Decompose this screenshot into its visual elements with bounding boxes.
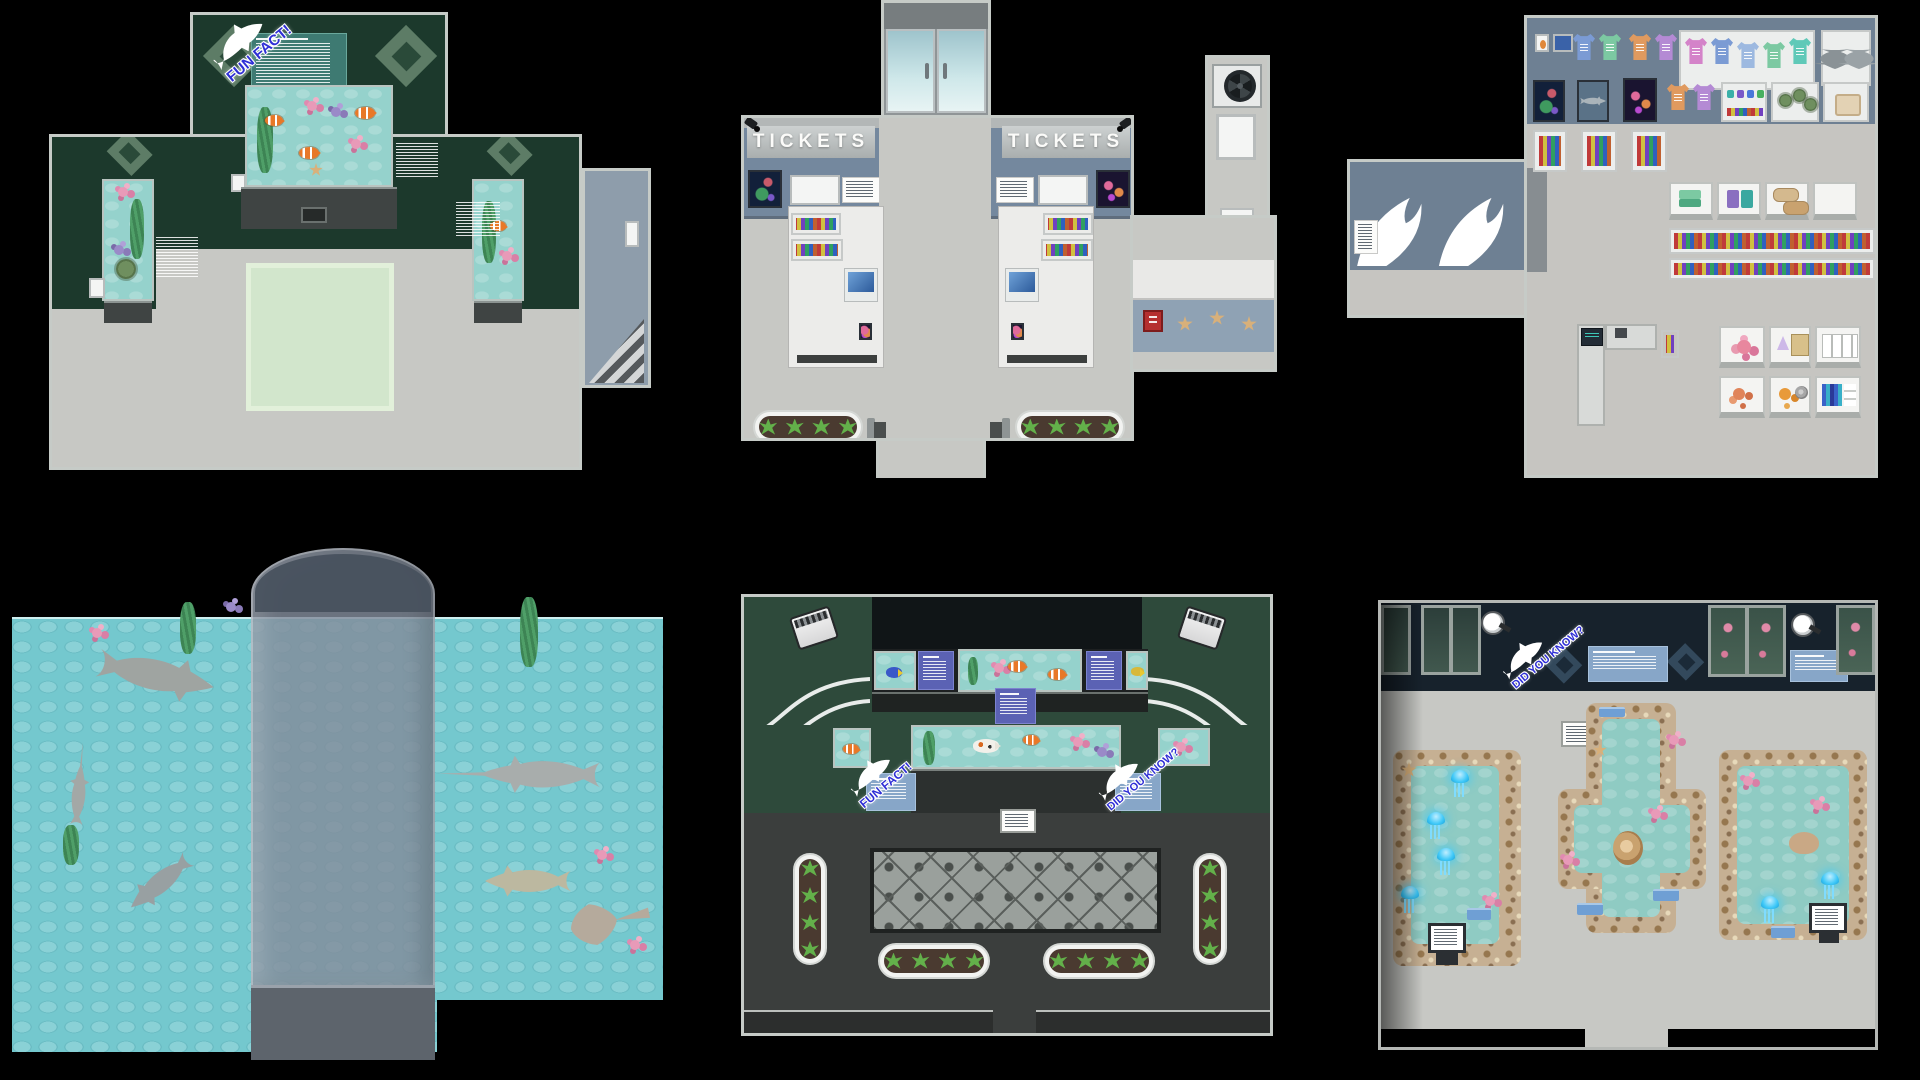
monitor-screen xyxy=(1009,272,1035,292)
checkout-counter-top xyxy=(1605,324,1657,350)
coral-icon xyxy=(1813,800,1823,810)
annex-sign xyxy=(625,221,639,247)
tickets-label: TICKETS xyxy=(1008,131,1124,153)
clownfish-icon xyxy=(1023,735,1039,745)
ticket-hall-room: TICKETS TICKETS xyxy=(741,115,1134,441)
jellyfish-dome xyxy=(1427,812,1445,825)
strip-tank xyxy=(1126,651,1148,690)
wall-info-text xyxy=(156,237,198,277)
towel-stack xyxy=(1679,190,1701,199)
gift-shop-entrance-wing xyxy=(1347,159,1527,318)
map-gift-shop xyxy=(1347,15,1878,480)
counter-front xyxy=(1133,300,1274,352)
plaque-body-text xyxy=(1593,656,1656,671)
brochure xyxy=(1011,323,1024,340)
clownfish-icon xyxy=(1048,669,1066,680)
bottles xyxy=(1637,136,1661,166)
left-tank-counter xyxy=(104,301,152,323)
wall-diamond-tile xyxy=(377,27,435,85)
merch-aisle-rack xyxy=(1669,228,1875,254)
plaque-body-text xyxy=(1795,660,1837,672)
south-exit xyxy=(1585,1029,1668,1049)
coral-icon xyxy=(92,628,102,638)
jellyfish-tentacles xyxy=(1430,825,1442,839)
first-aid-counter-area xyxy=(1130,215,1277,372)
plaque-title-line xyxy=(923,656,939,658)
plush-crab-icon xyxy=(1733,388,1745,400)
wall-info-text xyxy=(396,143,438,177)
towel-stack xyxy=(1679,199,1701,207)
counter-front-slot xyxy=(1007,355,1087,363)
glass-door-right xyxy=(937,29,986,113)
cylinder-tank xyxy=(251,548,435,988)
plaque-title-line xyxy=(1795,655,1824,657)
right-tank-counter xyxy=(474,301,522,323)
plaque-title-line xyxy=(1091,656,1107,658)
jellyfish-dome xyxy=(1761,896,1779,909)
bottle-stand xyxy=(1581,130,1617,172)
jellyfish-dome xyxy=(1437,848,1455,861)
coral-icon xyxy=(502,251,512,261)
mermaid-poster xyxy=(748,170,782,208)
coral-icon xyxy=(597,850,607,860)
pool-step xyxy=(1577,903,1603,915)
seaweed-icon xyxy=(180,602,196,654)
tshirt xyxy=(1789,38,1811,64)
plush-octopus-table xyxy=(1719,326,1765,368)
jellyfish-icon xyxy=(1427,812,1445,839)
coral-icon xyxy=(1097,747,1107,757)
kelp-icon xyxy=(130,199,144,259)
bottle-table xyxy=(1815,376,1861,418)
tank-window-pair xyxy=(1708,605,1786,677)
towel-table xyxy=(1717,182,1761,220)
mermaid-poster xyxy=(1533,80,1565,122)
pool-step xyxy=(1467,908,1491,920)
jellyfish-tentacles xyxy=(1824,885,1836,899)
mug-grid xyxy=(1822,334,1858,358)
schedule-poster xyxy=(996,177,1034,203)
wall-info-text xyxy=(456,202,500,238)
bottles xyxy=(1539,136,1561,166)
tickets-sign-right: TICKETS xyxy=(1002,126,1130,158)
coral-icon xyxy=(994,663,1004,673)
security-camera-icon xyxy=(745,119,761,133)
coral-icon xyxy=(1669,735,1679,745)
coral-icon xyxy=(351,139,361,149)
planter xyxy=(753,410,863,441)
tank-window xyxy=(1711,608,1745,674)
coral-icon xyxy=(1563,855,1573,865)
mug-icon xyxy=(1757,90,1764,98)
mug-table xyxy=(1815,326,1861,368)
coral-icon xyxy=(307,101,317,111)
kelp-icon xyxy=(923,731,935,765)
counter-front-slot xyxy=(797,355,877,363)
terminal-text xyxy=(1434,929,1457,947)
center-info-plaque xyxy=(995,688,1036,724)
mug-icon xyxy=(1737,90,1744,98)
clownfish-icon xyxy=(355,107,375,119)
info-kiosk xyxy=(1000,809,1036,833)
info-plaque xyxy=(1086,651,1122,690)
seaweed-icon xyxy=(520,597,538,667)
clownfish-icon xyxy=(299,147,319,159)
tshirt xyxy=(1685,38,1707,64)
tank-window-pair xyxy=(1421,605,1481,675)
jellyfish-dome xyxy=(1451,770,1469,783)
first-aid-box xyxy=(1143,310,1163,332)
terminal-base xyxy=(1436,953,1458,965)
clownfish-icon xyxy=(843,744,859,754)
terminal-base xyxy=(1819,933,1839,943)
schedule-text xyxy=(1000,181,1027,199)
south-exit-corridor xyxy=(876,441,986,478)
upper-tank-strip xyxy=(872,649,1148,692)
plush-octopus-icon xyxy=(1737,340,1751,354)
map-exhibit-room: FUN FACT! xyxy=(49,12,651,478)
left-booth-counter xyxy=(788,206,884,368)
gift-shop-room xyxy=(1524,15,1878,478)
plaque-title-line xyxy=(1000,693,1019,695)
koi-fish-icon xyxy=(973,739,999,753)
plush-crab-table xyxy=(1719,376,1765,418)
info-plaque xyxy=(1588,646,1668,682)
towel-stack xyxy=(1741,190,1753,208)
aquarium-maps-sheet: FUN FACT! TICKETS TICKETS xyxy=(0,0,1920,1080)
merch-rack xyxy=(791,239,843,261)
coral-icon xyxy=(1743,776,1753,786)
blue-tang-icon xyxy=(886,667,902,678)
diamond-rug xyxy=(870,848,1161,933)
wave-mural-wall xyxy=(1350,162,1524,270)
bottles xyxy=(1587,136,1611,166)
tank-window xyxy=(1453,608,1478,672)
south-exit xyxy=(993,1010,1036,1033)
life-ring-plaque xyxy=(1535,34,1549,52)
jellyfish-tentacles xyxy=(1440,861,1452,875)
floor-mat xyxy=(246,263,394,411)
spotlight-icon xyxy=(1791,613,1815,637)
duffel-table xyxy=(1765,182,1809,220)
merch-aisle-rack xyxy=(1669,258,1875,280)
tshirt xyxy=(1763,42,1785,68)
starfish-icon xyxy=(309,163,323,177)
tank-control-panel xyxy=(301,207,327,223)
pool-step xyxy=(1653,889,1679,901)
planter xyxy=(878,943,990,979)
coral-icon xyxy=(1485,896,1495,906)
empty-table xyxy=(1813,182,1857,220)
water-cutout xyxy=(437,1000,663,1060)
plush-turtle-icon xyxy=(1804,98,1817,111)
merch-rack xyxy=(1041,239,1093,261)
plaque-body-text xyxy=(1091,661,1114,680)
planter xyxy=(793,853,827,965)
shell-icon xyxy=(1795,386,1808,399)
seaweed-icon xyxy=(63,825,79,865)
security-camera-icon xyxy=(1116,119,1132,133)
plaque-body-text xyxy=(1000,698,1027,714)
right-wall-tank xyxy=(472,179,524,301)
planter xyxy=(1193,853,1227,965)
right-booth-counter xyxy=(998,206,1094,368)
entrance-lintel xyxy=(884,3,988,29)
tan-ray-icon xyxy=(1789,832,1819,854)
swordfish-icon xyxy=(435,753,600,797)
door-handle xyxy=(925,63,929,79)
gallery-ceiling-shadow xyxy=(872,597,1142,649)
mug-icon xyxy=(1727,90,1734,98)
marlin-icon xyxy=(45,738,114,827)
kiosk-text xyxy=(1005,814,1028,828)
jellyfish-tentacles xyxy=(1764,909,1776,923)
tank-window xyxy=(1749,608,1783,674)
tank-window xyxy=(1424,608,1449,672)
info-whiteboard xyxy=(1038,175,1088,205)
touch-pool-terminal xyxy=(1809,903,1847,933)
card-reader xyxy=(1615,328,1627,338)
tshirt xyxy=(1711,38,1733,64)
bottle-row xyxy=(1822,384,1842,406)
tickets-sign-left: TICKETS xyxy=(747,126,875,158)
terminal-text xyxy=(1815,909,1838,927)
mug-shelf xyxy=(1721,82,1767,122)
coral-icon xyxy=(118,187,128,197)
strip-tank xyxy=(958,649,1082,692)
sea-turtle-icon xyxy=(116,259,136,279)
info-plaque xyxy=(918,651,954,690)
shark-poster xyxy=(1577,80,1609,122)
merch-rack xyxy=(791,213,841,235)
pool-step xyxy=(1599,707,1625,717)
map-shark-lagoon xyxy=(12,540,663,1060)
plush-shark-shelf xyxy=(1821,30,1871,86)
jellyfish-tentacles xyxy=(1454,783,1466,797)
tuna-icon xyxy=(485,863,571,899)
shirt-rack xyxy=(1679,30,1815,90)
reef-poster xyxy=(1096,170,1130,208)
south-wall xyxy=(1036,1010,1270,1033)
kelp-icon xyxy=(968,657,978,685)
tote-bag-shelf xyxy=(1823,82,1869,122)
shark-icon xyxy=(1580,94,1606,108)
shop-west-wall xyxy=(1527,168,1547,272)
plush-turtle-shelf xyxy=(1771,82,1819,122)
exhibit-annex xyxy=(582,168,651,388)
tshirt xyxy=(1737,42,1759,68)
towel-table xyxy=(1669,182,1713,220)
planter xyxy=(1043,943,1155,979)
spotlight-icon xyxy=(1481,611,1505,635)
jellyfish-icon xyxy=(1761,896,1779,923)
pool-step xyxy=(1771,926,1795,938)
exit-wall-stub xyxy=(874,422,886,438)
left-wall-tank xyxy=(102,179,154,301)
merch-rack xyxy=(1043,213,1093,235)
staircase xyxy=(589,319,644,383)
plush-shark-icon xyxy=(1836,49,1878,69)
mug-row xyxy=(1727,108,1763,116)
exhibit-placard xyxy=(89,278,105,298)
jellyfish-dome xyxy=(1821,872,1839,885)
merch-items xyxy=(1674,233,1870,249)
plush-fish-icon xyxy=(1779,388,1791,400)
south-wall xyxy=(744,1010,993,1033)
cylinder-tank-base xyxy=(251,985,435,1060)
crystal-table xyxy=(1769,326,1811,368)
jellyfish-icon xyxy=(1451,770,1469,797)
starfish-icon xyxy=(1209,310,1225,326)
door-handle xyxy=(943,63,947,79)
tank-window-pair xyxy=(1836,605,1875,675)
jellyfish-icon xyxy=(1437,848,1455,875)
plaque-body-text xyxy=(923,661,946,680)
main-tank-counter xyxy=(911,769,1121,813)
center-reef-tank xyxy=(245,85,393,187)
wall-diamond-tile xyxy=(486,134,532,173)
yellow-fish-icon xyxy=(1131,667,1144,676)
duffel-bag-icon xyxy=(1783,201,1809,215)
coral-poster xyxy=(1623,78,1657,122)
plaque-title-line xyxy=(1593,651,1635,653)
box-row xyxy=(1844,384,1856,406)
jellyfish-icon xyxy=(1821,872,1839,899)
planter-soil xyxy=(1049,949,1149,973)
pos-monitor xyxy=(844,268,878,302)
fan-icon xyxy=(1224,70,1256,102)
brochure-rack xyxy=(1661,330,1679,358)
map-gallery-hall: FUN FACT! DID YOU KNOW? xyxy=(741,594,1273,1036)
tide-chart xyxy=(1553,34,1573,52)
schedule-text xyxy=(846,181,873,199)
map-touch-pool-room: DID YOU KNOW? xyxy=(1378,600,1878,1050)
bottle-stand xyxy=(1533,130,1567,172)
life-ring-icon xyxy=(1540,40,1546,49)
wall-diamond-tile xyxy=(1668,645,1704,679)
info-whiteboard xyxy=(790,175,840,205)
wall-diamond-tile xyxy=(106,134,152,173)
coral-icon xyxy=(331,107,341,117)
coral-icon xyxy=(114,245,124,255)
tote-bag-icon xyxy=(1835,94,1861,116)
towel-stack xyxy=(1727,190,1739,208)
mug-icon xyxy=(1747,90,1754,98)
schedule-poster xyxy=(842,177,880,203)
crystal-icon xyxy=(1777,336,1789,350)
planter-soil xyxy=(884,949,984,973)
ice-machine xyxy=(1216,114,1256,160)
center-tank-counter xyxy=(241,187,397,229)
plush-turtle-icon xyxy=(1779,94,1792,107)
glass-door-left xyxy=(886,29,935,113)
coral-icon xyxy=(1073,737,1083,747)
ticket-stand xyxy=(1002,418,1010,440)
clownfish-icon xyxy=(1008,661,1026,672)
main-gallery-tank xyxy=(911,725,1121,769)
touch-pool-terminal xyxy=(1428,923,1466,953)
starfish-icon xyxy=(1241,316,1257,332)
clownfish-icon xyxy=(265,115,283,126)
counter-top xyxy=(1133,260,1274,300)
entrance-door-wing xyxy=(881,0,991,118)
coral-icon xyxy=(226,602,236,612)
monitor-screen xyxy=(848,272,874,292)
gift-box xyxy=(1791,334,1809,356)
merch-items xyxy=(1674,263,1870,275)
tank-window xyxy=(1839,608,1872,672)
plush-fish-table xyxy=(1769,376,1811,418)
brochure xyxy=(859,323,872,340)
cylinder-tank-cap xyxy=(255,554,431,612)
snail-shell-icon xyxy=(1613,831,1643,865)
pos-monitor xyxy=(1005,268,1039,302)
schedule-poster xyxy=(1354,220,1378,254)
map-ticket-hall: TICKETS TICKETS xyxy=(740,0,1277,480)
coral-icon xyxy=(1651,809,1661,819)
duffel-bag-icon xyxy=(1773,188,1799,202)
starfish-icon xyxy=(1177,316,1193,332)
strip-tank xyxy=(874,651,916,690)
planter-soil xyxy=(759,416,857,438)
cash-register xyxy=(1581,328,1603,346)
exit-wall-stub xyxy=(990,422,1002,438)
planter-soil xyxy=(1021,416,1119,438)
schedule-text xyxy=(1358,224,1372,250)
tickets-label: TICKETS xyxy=(753,131,869,153)
left-shadow-band xyxy=(1381,603,1423,1047)
planter xyxy=(1015,410,1125,441)
bottle-stand xyxy=(1631,130,1667,172)
coral-icon xyxy=(630,940,640,950)
ac-unit xyxy=(1212,64,1262,108)
